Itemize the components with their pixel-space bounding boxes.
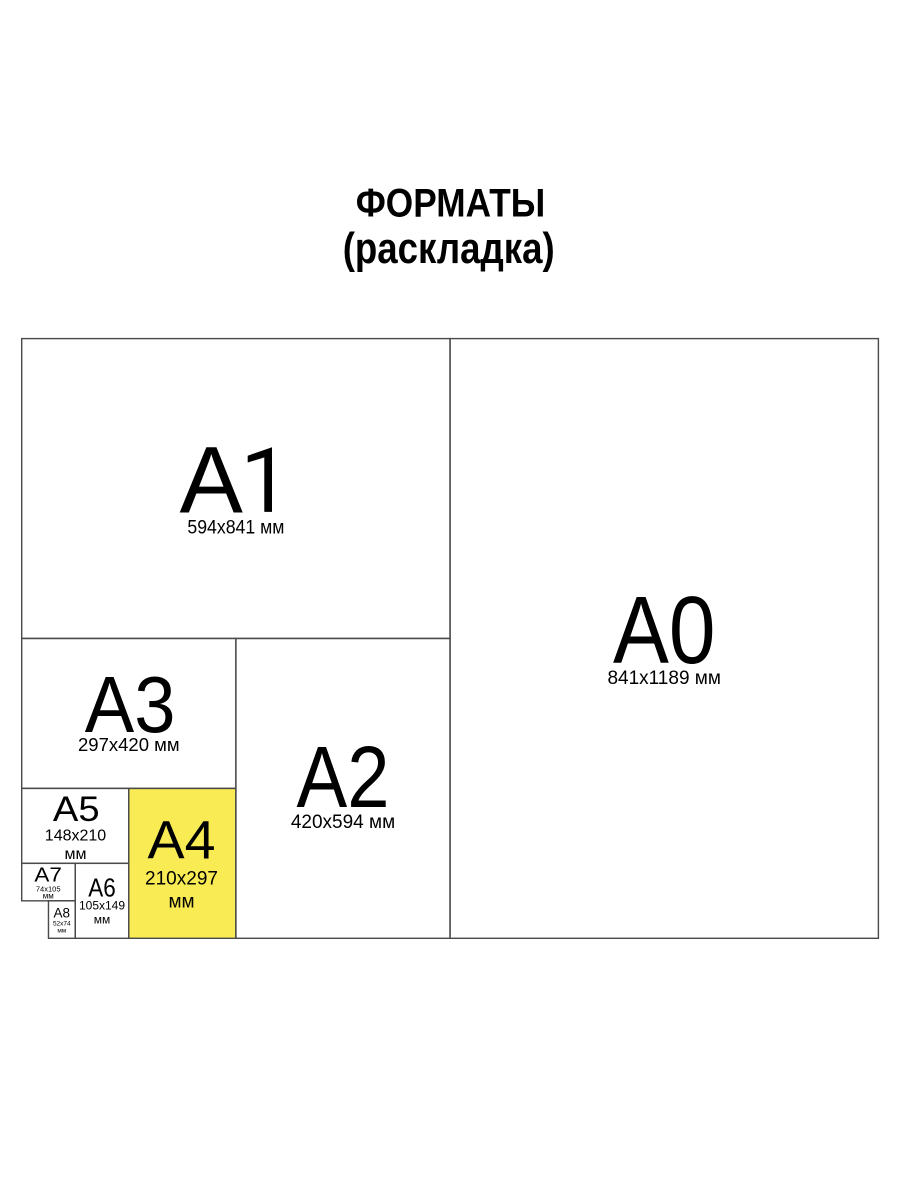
svg-text:A7: A7 [34, 864, 62, 886]
svg-text:мм: мм [57, 928, 66, 935]
svg-text:105x149: 105x149 [79, 899, 125, 913]
svg-text:210x297: 210x297 [145, 869, 218, 890]
svg-text:A8: A8 [54, 905, 71, 920]
svg-text:420x594 мм: 420x594 мм [291, 812, 395, 833]
svg-text:297x420 мм: 297x420 мм [78, 734, 180, 755]
svg-text:52x74: 52x74 [53, 920, 71, 927]
svg-text:мм: мм [43, 891, 54, 900]
svg-text:(раскладка): (раскладка) [343, 224, 555, 273]
svg-text:841x1189 мм: 841x1189 мм [607, 668, 720, 689]
svg-text:мм: мм [65, 846, 87, 863]
svg-text:A4: A4 [148, 810, 216, 870]
svg-text:мм: мм [94, 913, 111, 927]
svg-text:мм: мм [168, 892, 194, 913]
svg-text:A5: A5 [53, 790, 100, 829]
svg-text:594x841 мм: 594x841 мм [187, 517, 284, 538]
svg-text:ФОРМАТЫ: ФОРМАТЫ [356, 181, 546, 225]
svg-text:148x210: 148x210 [45, 828, 106, 845]
